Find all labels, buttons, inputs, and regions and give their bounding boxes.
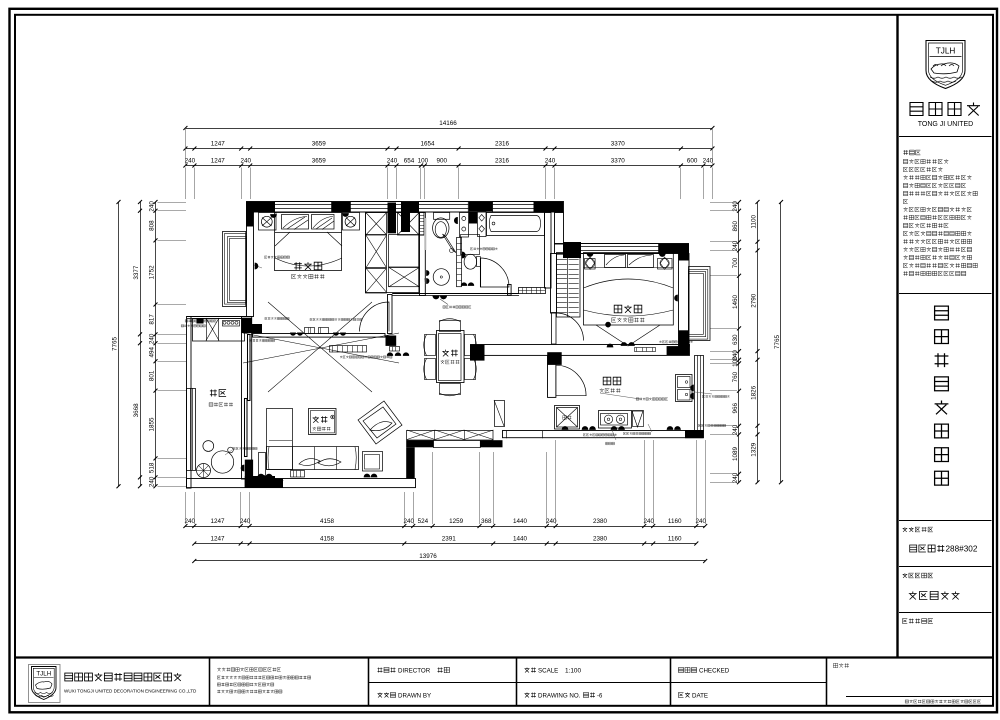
svg-text:100: 100 — [418, 157, 429, 164]
svg-text:3659: 3659 — [312, 157, 327, 164]
svg-text:1855: 1855 — [148, 417, 155, 432]
svg-text:CHECKED: CHECKED — [699, 667, 730, 674]
svg-text:2380: 2380 — [593, 518, 608, 525]
svg-text:288#302: 288#302 — [946, 544, 978, 553]
svg-text:817: 817 — [148, 314, 155, 325]
svg-text:1247: 1247 — [211, 140, 226, 147]
svg-text:TONG JI UNITED: TONG JI UNITED — [918, 121, 973, 128]
svg-text:DRAWN BY: DRAWN BY — [398, 692, 431, 699]
svg-text:1440: 1440 — [513, 535, 528, 542]
svg-text:-6: -6 — [597, 693, 603, 699]
svg-text:100: 100 — [732, 356, 739, 367]
svg-text:1247: 1247 — [210, 535, 225, 542]
svg-text:TJLH: TJLH — [936, 47, 956, 56]
svg-text:WUXI TONGJI UNITED DECORATION: WUXI TONGJI UNITED DECORATION ENGINEERIN… — [64, 689, 197, 694]
svg-text:1752: 1752 — [148, 265, 155, 280]
svg-text:1:100: 1:100 — [565, 667, 581, 674]
svg-text:7765: 7765 — [774, 335, 781, 350]
svg-text:240: 240 — [732, 240, 739, 251]
svg-text:808: 808 — [148, 220, 155, 231]
svg-text:240: 240 — [545, 157, 556, 164]
svg-text:3370: 3370 — [611, 157, 626, 164]
svg-text:14166: 14166 — [439, 120, 457, 127]
svg-text:240: 240 — [148, 476, 155, 487]
svg-text:240: 240 — [732, 472, 739, 483]
svg-text:966: 966 — [732, 402, 739, 413]
svg-text:1247: 1247 — [211, 157, 226, 164]
svg-text:240: 240 — [695, 518, 706, 525]
svg-text:4158: 4158 — [320, 518, 335, 525]
svg-text:860: 860 — [732, 220, 739, 231]
svg-text:1440: 1440 — [513, 518, 528, 525]
svg-text:240: 240 — [643, 518, 654, 525]
svg-text:TJLH: TJLH — [36, 671, 51, 678]
svg-text:DIRECTOR: DIRECTOR — [398, 667, 431, 674]
svg-text:1089: 1089 — [732, 447, 739, 462]
svg-text:1259: 1259 — [449, 518, 464, 525]
svg-text:240: 240 — [403, 518, 414, 525]
svg-text:1826: 1826 — [750, 385, 757, 400]
svg-text:654: 654 — [404, 157, 415, 164]
svg-text:700: 700 — [732, 257, 739, 268]
svg-text:240: 240 — [148, 333, 155, 344]
svg-text:760: 760 — [732, 371, 739, 382]
svg-text:3659: 3659 — [312, 140, 327, 147]
svg-text:2391: 2391 — [442, 535, 457, 542]
svg-text:801: 801 — [148, 370, 155, 381]
svg-text:240: 240 — [387, 157, 398, 164]
svg-text:524: 524 — [418, 518, 429, 525]
svg-text:2316: 2316 — [495, 157, 510, 164]
svg-text:600: 600 — [687, 157, 698, 164]
svg-text:240: 240 — [185, 518, 196, 525]
svg-text:518: 518 — [148, 462, 155, 473]
svg-text:900: 900 — [436, 157, 447, 164]
svg-text:2316: 2316 — [495, 140, 510, 147]
svg-text:240: 240 — [732, 201, 739, 212]
svg-text:1329: 1329 — [750, 442, 757, 457]
svg-text:1100: 1100 — [750, 215, 757, 229]
svg-text:1654: 1654 — [420, 140, 435, 147]
svg-text:1160: 1160 — [668, 518, 682, 525]
svg-text:240: 240 — [148, 201, 155, 212]
svg-text:240: 240 — [703, 157, 714, 164]
svg-text:1247: 1247 — [210, 518, 225, 525]
svg-text:368: 368 — [481, 518, 492, 525]
svg-text:3668: 3668 — [133, 403, 140, 418]
svg-text:13976: 13976 — [419, 553, 437, 560]
svg-text:2380: 2380 — [593, 535, 608, 542]
svg-text:240: 240 — [732, 424, 739, 435]
svg-text:240: 240 — [185, 157, 196, 164]
svg-text:2790: 2790 — [750, 293, 757, 308]
svg-text:630: 630 — [732, 334, 739, 345]
svg-text:DRAWING NO.: DRAWING NO. — [538, 692, 581, 699]
svg-text:SCALE: SCALE — [538, 667, 558, 674]
svg-text:3370: 3370 — [611, 140, 626, 147]
svg-text:DATE: DATE — [692, 692, 708, 699]
svg-text:3377: 3377 — [133, 265, 140, 280]
svg-text:1160: 1160 — [668, 535, 682, 542]
svg-text:4158: 4158 — [320, 535, 335, 542]
svg-text:1460: 1460 — [732, 295, 739, 310]
svg-text:494: 494 — [148, 346, 155, 357]
svg-text:7765: 7765 — [111, 337, 118, 352]
svg-text:240: 240 — [240, 518, 251, 525]
svg-text:240: 240 — [240, 157, 251, 164]
